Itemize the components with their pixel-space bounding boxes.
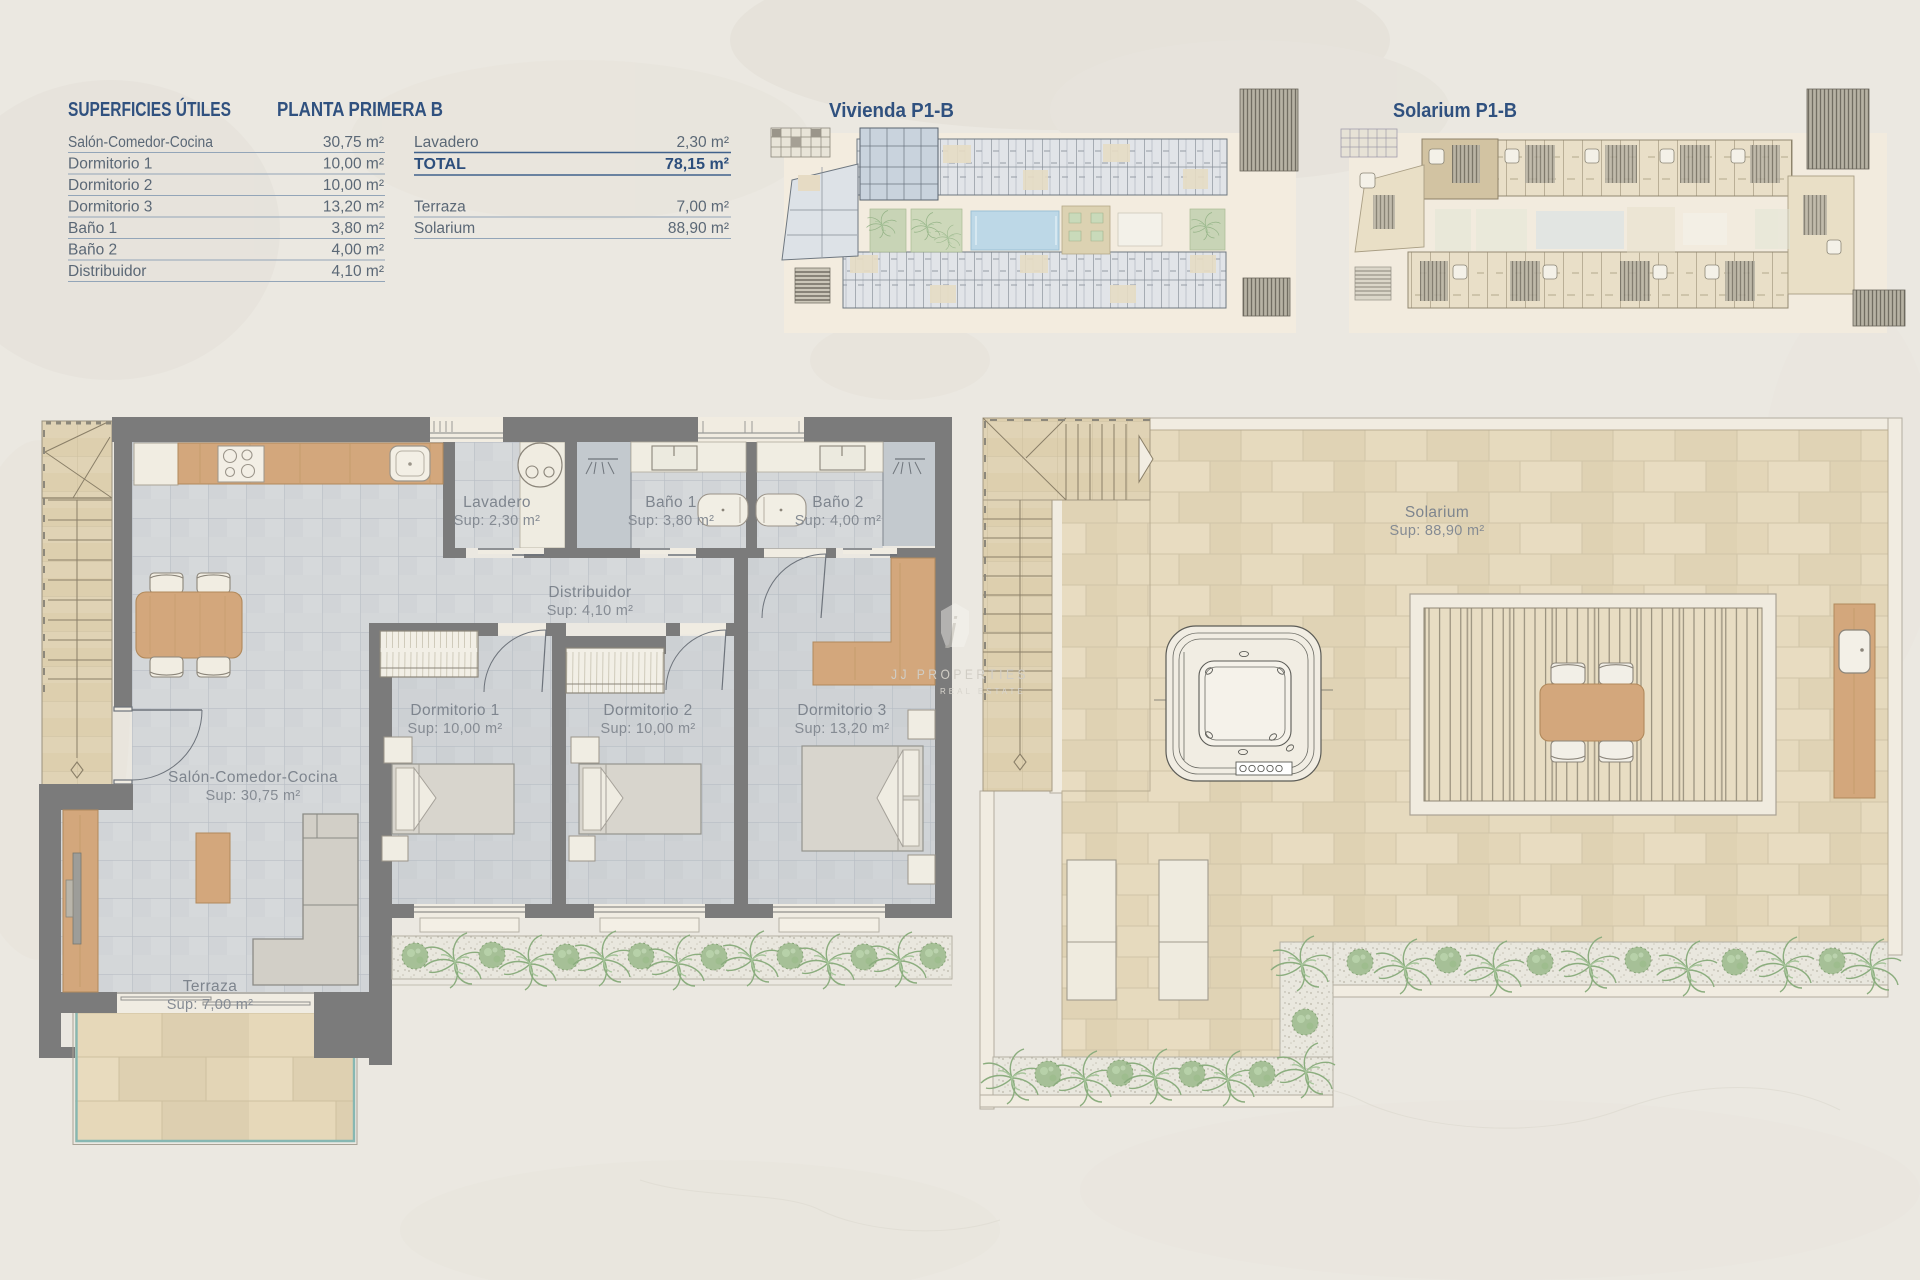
svg-text:Sup: 7,00 m²: Sup: 7,00 m² (167, 997, 254, 1013)
svg-text:Sup: 2,30 m²: Sup: 2,30 m² (454, 513, 541, 529)
svg-text:Baño 2: Baño 2 (68, 242, 117, 259)
svg-text:Terraza: Terraza (183, 978, 237, 995)
svg-text:Dormitorio 3: Dormitorio 3 (797, 702, 886, 719)
svg-text:JJ PROPERTIES: JJ PROPERTIES (891, 666, 1029, 682)
svg-text:Distribuidor: Distribuidor (548, 584, 631, 601)
svg-text:Terraza: Terraza (414, 199, 466, 216)
svg-text:4,10 m²: 4,10 m² (331, 263, 384, 280)
svg-text:4,00 m²: 4,00 m² (331, 242, 384, 259)
svg-text:88,90 m²: 88,90 m² (668, 220, 729, 237)
svg-text:Lavadero: Lavadero (463, 494, 531, 511)
svg-text:Lavadero: Lavadero (414, 134, 479, 151)
svg-text:Salón-Comedor-Cocina: Salón-Comedor-Cocina (168, 769, 338, 786)
svg-text:Dormitorio 1: Dormitorio 1 (410, 702, 499, 719)
svg-text:TOTAL: TOTAL (414, 156, 466, 173)
svg-text:PLANTA PRIMERA B: PLANTA PRIMERA B (277, 99, 443, 121)
svg-text:Sup: 10,00 m²: Sup: 10,00 m² (601, 721, 696, 737)
svg-text:78,15 m²: 78,15 m² (665, 156, 729, 173)
svg-text:Sup: 4,10 m²: Sup: 4,10 m² (547, 603, 634, 619)
svg-text:3,80 m²: 3,80 m² (331, 220, 384, 237)
svg-text:2,30 m²: 2,30 m² (676, 134, 729, 151)
svg-text:Baño 2: Baño 2 (812, 494, 864, 511)
svg-text:Solarium P1-B: Solarium P1-B (1393, 100, 1517, 122)
svg-text:Dormitorio 2: Dormitorio 2 (68, 177, 152, 194)
svg-text:Sup: 3,80 m²: Sup: 3,80 m² (628, 513, 715, 529)
svg-text:Vivienda P1-B: Vivienda P1-B (829, 100, 954, 122)
svg-text:Dormitorio 1: Dormitorio 1 (68, 156, 152, 173)
svg-text:Baño 1: Baño 1 (645, 494, 697, 511)
svg-text:Salón-Comedor-Cocina: Salón-Comedor-Cocina (68, 134, 213, 151)
svg-text:Sup: 30,75 m²: Sup: 30,75 m² (206, 788, 301, 804)
svg-text:7,00 m²: 7,00 m² (676, 199, 729, 216)
svg-text:Dormitorio 3: Dormitorio 3 (68, 199, 152, 216)
svg-text:REAL ESTATE: REAL ESTATE (940, 687, 1026, 696)
svg-text:SUPERFICIES ÚTILES: SUPERFICIES ÚTILES (68, 97, 231, 121)
svg-text:10,00 m²: 10,00 m² (323, 177, 384, 194)
svg-text:13,20 m²: 13,20 m² (323, 199, 384, 216)
svg-text:Dormitorio 2: Dormitorio 2 (603, 702, 692, 719)
svg-text:Solarium: Solarium (1405, 504, 1469, 521)
svg-text:30,75 m²: 30,75 m² (323, 134, 384, 151)
svg-text:Sup: 10,00 m²: Sup: 10,00 m² (408, 721, 503, 737)
svg-text:10,00 m²: 10,00 m² (323, 156, 384, 173)
svg-text:Sup: 4,00 m²: Sup: 4,00 m² (795, 513, 882, 529)
svg-text:Sup: 13,20 m²: Sup: 13,20 m² (795, 721, 890, 737)
svg-text:Solarium: Solarium (414, 220, 475, 237)
svg-text:Baño 1: Baño 1 (68, 220, 117, 237)
svg-text:Distribuidor: Distribuidor (68, 263, 146, 280)
svg-text:Sup: 88,90 m²: Sup: 88,90 m² (1390, 523, 1485, 539)
